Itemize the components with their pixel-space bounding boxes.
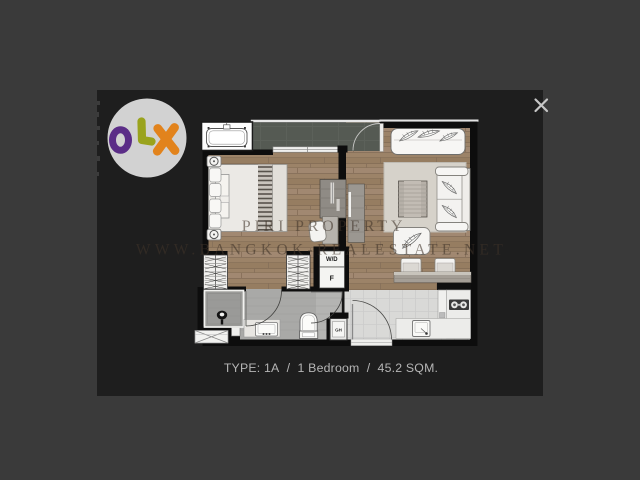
svg-text:PIRI PROPERTY: PIRI PROPERTY bbox=[242, 218, 406, 235]
svg-text:GH: GH bbox=[335, 328, 342, 333]
svg-text:TYPE: 1A / 1 Bedroom / 45.: TYPE: 1A / 1 Bedroom / 45.2 SQM. bbox=[224, 361, 438, 375]
svg-text:F: F bbox=[330, 276, 335, 283]
svg-text:WWW.BANGKOK-REALESTATE.NET: WWW.BANGKOK-REALESTATE.NET bbox=[136, 242, 507, 259]
